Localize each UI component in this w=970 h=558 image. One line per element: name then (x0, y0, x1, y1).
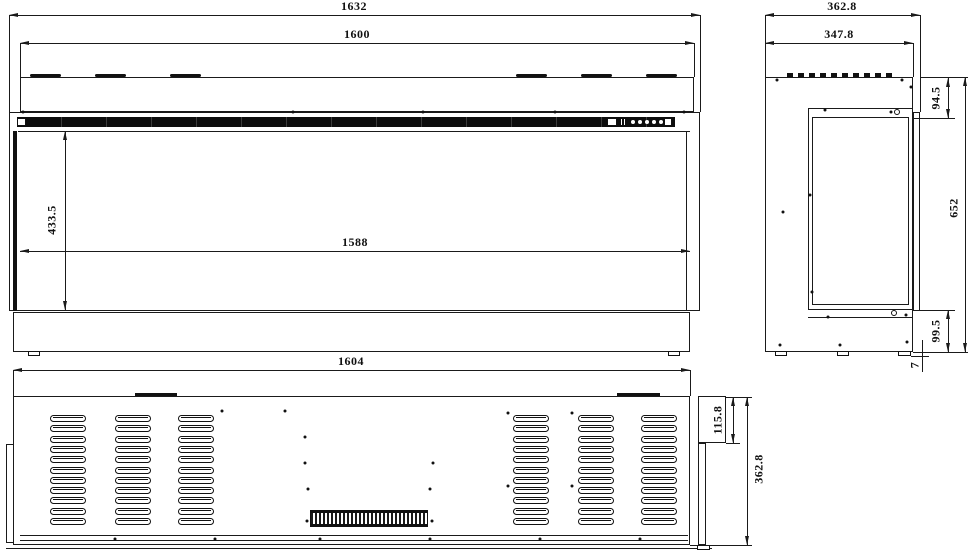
vent-louver (50, 487, 86, 494)
vent-louver (178, 497, 214, 504)
dim-line-overall-width (9, 15, 700, 16)
vent-louver (578, 415, 614, 422)
dim-line-depth (747, 397, 748, 545)
front-glass-panel (9, 112, 700, 311)
extension-line (700, 15, 701, 112)
side-foot (837, 351, 849, 356)
screw-dot (306, 520, 309, 523)
dim-line-overall-depth (765, 15, 920, 16)
front-foot-right (668, 351, 680, 356)
vent-louver (50, 436, 86, 443)
vent-louver (115, 415, 151, 422)
vent-louver (115, 508, 151, 515)
extension-line (920, 15, 921, 112)
screw-dot (284, 410, 287, 413)
vent-louver (641, 487, 677, 494)
screw-dot (304, 462, 307, 465)
side-foot (775, 351, 787, 356)
extension-line (913, 118, 955, 119)
screw-dot (779, 344, 782, 347)
vent-louver (50, 518, 86, 525)
screw-dot (507, 485, 510, 488)
control-button-dot (645, 120, 649, 124)
screw-dot (539, 538, 542, 541)
vent-louver (641, 415, 677, 422)
vent-louver (50, 467, 86, 474)
extension-line (690, 545, 752, 546)
control-button-dot (638, 120, 642, 124)
screw-dot (811, 291, 814, 294)
vent-louver (641, 497, 677, 504)
side-bolt-hole-top (894, 109, 900, 115)
control-divider-bar (624, 119, 625, 125)
dim-label-foot-height: 7 (908, 362, 923, 369)
screw-dot (292, 111, 295, 114)
screw-dot (776, 79, 779, 82)
screw-dot (422, 111, 425, 114)
vent-louver (513, 477, 549, 484)
screw-dot (214, 538, 217, 541)
vent-louver (50, 425, 86, 432)
vent-louver (178, 446, 214, 453)
dim-line-top-width (20, 43, 694, 44)
bottom-strip-line (20, 540, 688, 541)
screw-dot (114, 538, 117, 541)
screw-dot (571, 412, 574, 415)
right-side-flange (698, 443, 706, 545)
vent-louver (178, 436, 214, 443)
vent-louver (115, 456, 151, 463)
mount-bracket-tab (617, 393, 660, 396)
dim-label-overall-width: 1632 (341, 0, 367, 14)
heater-outlet-grille (310, 510, 428, 527)
top-mount-tab (95, 74, 126, 77)
vent-louver (178, 467, 214, 474)
front-top-section (20, 77, 694, 112)
vent-louver (641, 467, 677, 474)
vent-louver (115, 467, 151, 474)
top-mount-tab (516, 74, 547, 77)
vent-louver (641, 436, 677, 443)
vent-louver (578, 477, 614, 484)
technical-drawing-canvas: 1632 1600 433.5 1588 362.8 (0, 0, 970, 558)
dim-label-glass-height: 433.5 (45, 205, 60, 235)
left-side-flange (6, 444, 14, 543)
vent-louver (641, 477, 677, 484)
vent-louver (513, 487, 549, 494)
vent-louver (178, 508, 214, 515)
vent-louver (50, 446, 86, 453)
vent-louver (115, 518, 151, 525)
screw-dot (22, 111, 25, 114)
control-divider-bar (621, 119, 622, 125)
top-mount-tab (581, 74, 612, 77)
vent-louver (178, 477, 214, 484)
vent-louver (50, 415, 86, 422)
screw-dot (906, 341, 909, 344)
screw-dot (905, 314, 908, 317)
control-button-dot (659, 120, 663, 124)
control-display-window (607, 118, 617, 126)
control-button-dot (631, 120, 635, 124)
extension-line (20, 43, 21, 77)
vent-louver (115, 446, 151, 453)
vent-louver (50, 508, 86, 515)
dim-label-overall-depth: 362.8 (827, 0, 857, 14)
top-mount-tab (170, 74, 201, 77)
vent-louver (578, 436, 614, 443)
dim-line-top-section-height (948, 78, 949, 118)
vent-louver (115, 487, 151, 494)
vent-louver (178, 518, 214, 525)
side-bolt-hole-bottom (891, 310, 897, 316)
extension-line (911, 356, 929, 357)
top-mount-tab (30, 74, 61, 77)
band-end-cap-left (17, 118, 26, 126)
screw-dot (824, 109, 827, 112)
vent-louver (50, 477, 86, 484)
screw-dot (319, 538, 322, 541)
screw-dot (571, 485, 574, 488)
vent-louver (513, 456, 549, 463)
vent-louver (641, 518, 677, 525)
top-mount-tab (646, 74, 677, 77)
dim-label-overall-height: 652 (947, 198, 962, 218)
vent-louver (115, 477, 151, 484)
vent-louver (178, 456, 214, 463)
extension-line (765, 15, 766, 77)
vent-louver (513, 425, 549, 432)
side-foot (898, 351, 911, 356)
screw-dot (307, 488, 310, 491)
screw-dot (507, 412, 510, 415)
dim-line-terminal-box-height (733, 397, 734, 443)
vent-louver (578, 446, 614, 453)
screw-dot (429, 538, 432, 541)
vent-louver (578, 508, 614, 515)
dim-line-body-depth (765, 43, 913, 44)
band-end-cap-right (664, 118, 672, 126)
vent-louver (641, 446, 677, 453)
bottom-strip-line (20, 535, 688, 536)
vent-louver (578, 487, 614, 494)
dim-label-opening-width: 1588 (342, 235, 368, 250)
vent-louver (513, 518, 549, 525)
screw-dot (809, 194, 812, 197)
extension-line (13, 370, 14, 396)
vent-louver (513, 436, 549, 443)
front-foot-left (28, 351, 40, 356)
vent-louver (641, 508, 677, 515)
vent-louver (50, 497, 86, 504)
screw-dot (554, 111, 557, 114)
vent-louver (641, 425, 677, 432)
vent-louver (178, 487, 214, 494)
side-glass-edge (913, 112, 920, 311)
vent-louver (641, 456, 677, 463)
firebox-top-line (18, 131, 690, 132)
vent-louver (578, 467, 614, 474)
screw-dot (901, 79, 904, 82)
screw-dot (304, 436, 307, 439)
front-base-section (13, 312, 690, 352)
vent-louver (513, 467, 549, 474)
extension-line (920, 77, 968, 78)
side-base-line (808, 317, 913, 318)
vent-louver (513, 497, 549, 504)
screw-dot (782, 211, 785, 214)
vent-louver (578, 456, 614, 463)
vent-louver (178, 425, 214, 432)
mount-bracket-tab (135, 393, 177, 396)
screw-dot (432, 462, 435, 465)
vent-louver (578, 497, 614, 504)
screw-dot (839, 344, 842, 347)
side-top-vent-ribs (787, 73, 897, 77)
vent-louver (115, 436, 151, 443)
vent-louver (513, 446, 549, 453)
screw-dot (910, 86, 913, 89)
dim-label-terminal-box-height: 115.8 (711, 406, 726, 435)
dim-line-opening-width (20, 251, 690, 252)
dim-line-glass-height (65, 131, 66, 310)
vent-louver (115, 497, 151, 504)
extension-line (913, 43, 914, 77)
firebox-left-edge (13, 131, 17, 311)
front-vent-band (17, 117, 675, 127)
extension-line (690, 370, 691, 396)
control-button-dot (652, 120, 656, 124)
screw-dot (639, 538, 642, 541)
vent-louver (513, 508, 549, 515)
firebox-right-edge (686, 131, 687, 311)
dim-label-depth: 362.8 (752, 454, 767, 484)
vent-louver (178, 415, 214, 422)
dim-line-body-width (13, 370, 690, 371)
dim-label-top-section-height: 94.5 (929, 87, 944, 110)
dim-label-top-width: 1600 (344, 27, 370, 42)
dim-line-overall-height (965, 77, 966, 352)
extension-line (726, 443, 740, 444)
dim-line-base-height (948, 310, 949, 352)
screw-dot (890, 111, 893, 114)
extension-line (9, 15, 10, 112)
extension-line (694, 43, 695, 77)
screw-dot (429, 488, 432, 491)
vent-louver (50, 456, 86, 463)
dim-label-body-width: 1604 (338, 354, 364, 369)
vent-louver (578, 518, 614, 525)
screw-dot (683, 111, 686, 114)
screw-dot (827, 316, 830, 319)
dim-label-base-height: 99.5 (929, 320, 944, 343)
vent-louver (578, 425, 614, 432)
dim-label-body-depth: 347.8 (824, 27, 854, 42)
vent-louver (115, 425, 151, 432)
side-inner-box-inner (812, 117, 909, 305)
screw-dot (431, 520, 434, 523)
screw-dot (221, 410, 224, 413)
bottom-strip-line (6, 548, 712, 549)
vent-louver (513, 415, 549, 422)
